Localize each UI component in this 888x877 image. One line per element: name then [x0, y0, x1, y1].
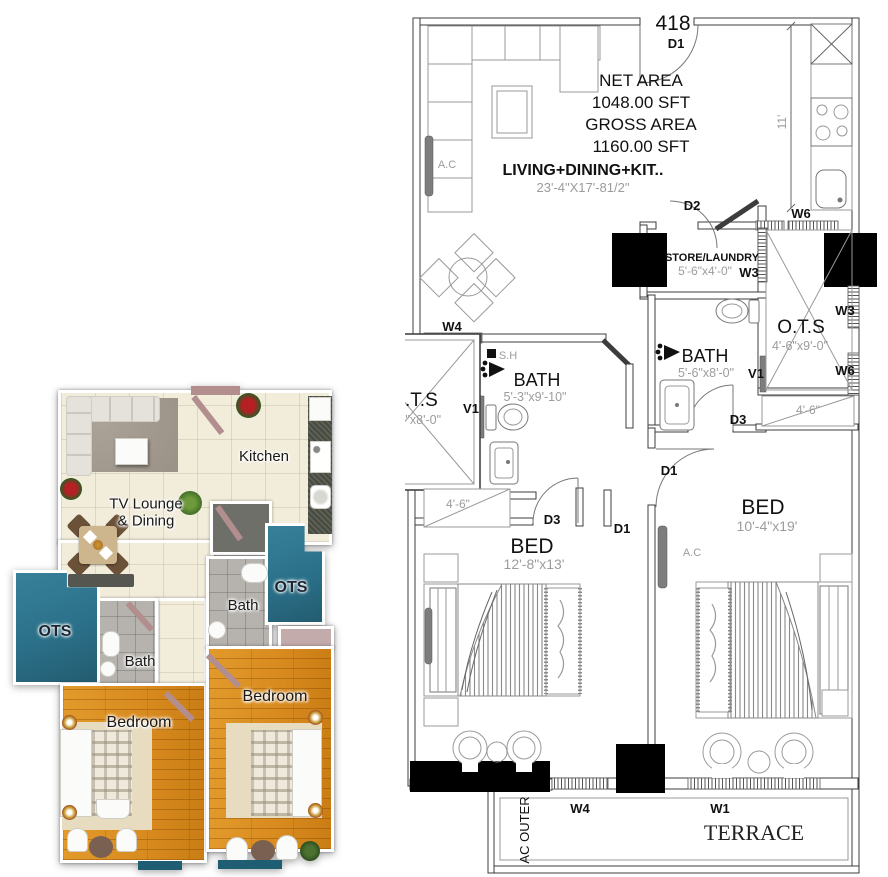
dining-set-icon: [420, 234, 515, 322]
lamp-icon: [62, 805, 77, 820]
window-tag: W3: [835, 303, 855, 318]
entry-door-header: [191, 386, 240, 395]
window-tag: W4: [570, 801, 590, 816]
lamp-icon: [308, 803, 323, 818]
bedroom1-label: Bedroom: [107, 714, 172, 732]
window-tag: W4: [442, 319, 462, 334]
shower-tag: S.H: [499, 350, 517, 362]
kitchen-dim: 11': [775, 115, 789, 130]
ots-right-label: O.T.S: [777, 317, 825, 338]
stove-icon: [310, 441, 331, 473]
kitchen-fittings: [787, 22, 852, 212]
lounge-label-line1: TV Lounge: [109, 497, 182, 514]
coffee-table-icon: [115, 438, 148, 465]
door-tag: D1: [614, 521, 631, 536]
sink-icon: [100, 661, 116, 677]
bath-right-label: BATH: [682, 346, 729, 366]
window-w4-icon: [552, 778, 608, 789]
unit-number: 418: [655, 12, 690, 35]
ots-right-label: OTS: [275, 579, 308, 597]
net-area-label: NET AREA: [599, 71, 683, 90]
toilet-icon: [241, 563, 268, 583]
living-room-dims: 23'-4"X17'-81/2": [537, 180, 630, 195]
bed1-headboard: [60, 729, 92, 817]
ac-tag: A.C: [683, 547, 701, 559]
window-sill: [218, 860, 282, 869]
store-label: STORE/LAUNDRY: [665, 252, 760, 264]
fridge-icon: [309, 397, 331, 421]
cad-floor-plan: 418 D1 NET AREA 1048.00 SFT GROSS AREA 1…: [405, 0, 888, 877]
kitchen-sink-icon: [816, 170, 846, 208]
shower-icon: [664, 345, 680, 360]
lounge-label: TV Lounge & Dining: [109, 497, 182, 530]
terrace-label: TERRACE: [704, 820, 804, 845]
toilet-icon: [716, 299, 759, 323]
chair-icon: [703, 733, 741, 778]
ac-outer-label: AC OUTER: [517, 796, 532, 863]
toilet-icon: [102, 631, 120, 657]
window-sill: [138, 861, 182, 870]
ots-center-dims: 7'-2"x8'-0": [405, 413, 441, 427]
door-tag: D3: [544, 512, 561, 527]
kitchen-sink-icon: [310, 485, 331, 509]
chair-icon: [276, 835, 298, 860]
bedroom2-label: Bedroom: [243, 688, 308, 706]
chair-icon: [226, 837, 248, 862]
lounge-label-line2: & Dining: [109, 513, 182, 530]
ots-center-label: O.T.S: [405, 390, 438, 411]
lamp-icon: [308, 710, 323, 725]
sofa-chaise-icon: [560, 26, 598, 92]
chair-icon: [775, 733, 813, 778]
bed-right-dims: 10'-4"x19': [737, 518, 798, 534]
flower-icon: [60, 478, 82, 500]
floor-plan-sheet: Kitchen TV Lounge & Dining Bath Bath OTS…: [0, 0, 888, 877]
ots-left-label: OTS: [39, 623, 72, 641]
sink-icon: [208, 621, 226, 639]
bed-left-dims: 12'-8"x13': [504, 556, 565, 572]
ottoman-icon: [89, 836, 113, 858]
vent-tag: V1: [748, 366, 764, 381]
door-tag: D3: [730, 412, 747, 427]
door-d3-icon: [688, 385, 733, 430]
bath-right-label: Bath: [228, 598, 259, 615]
ac-unit-icon: [425, 136, 433, 196]
bed1-foot-sheet: [96, 799, 130, 819]
store-dims: 5'-6"x4'-0": [678, 264, 732, 278]
ac-unit-icon: [658, 526, 667, 588]
shower-head-box-icon: [487, 349, 496, 358]
net-area-value: 1048.00 SFT: [592, 93, 690, 112]
bath-center-label: BATH: [514, 370, 561, 390]
bed2-blanket: [251, 730, 292, 816]
door-tag: D1: [661, 463, 678, 478]
color-floor-plan: Kitchen TV Lounge & Dining Bath Bath OTS…: [12, 385, 335, 877]
flower-icon: [236, 393, 261, 418]
chair-icon: [67, 828, 88, 852]
ac-tag: A.C: [438, 159, 456, 171]
window-tag: W6: [791, 206, 811, 221]
corner-stand-icon: [822, 690, 848, 716]
shower-icon: [489, 362, 505, 377]
door-tag: D2: [684, 198, 701, 213]
tv-console-icon: [68, 574, 134, 587]
stove-icon: [811, 98, 852, 146]
window-tag: W1: [710, 801, 730, 816]
living-room-label: LIVING+DINING+KIT..: [503, 162, 664, 179]
vent-tag: V1: [463, 401, 479, 416]
bath-center-dims: 5'-3"x9'-10": [504, 390, 567, 404]
window-w1-icon: [688, 778, 820, 789]
bed-left-label: BED: [510, 535, 553, 558]
plant-icon: [300, 841, 320, 861]
side-table-icon: [748, 751, 770, 773]
kitchen-label: Kitchen: [239, 449, 289, 466]
window-tag: W6: [835, 363, 855, 378]
coffee-table-icon: [492, 86, 532, 138]
door-d1-icon: [656, 449, 714, 507]
window-w6-icon: [788, 221, 838, 230]
ledge-dim: 4'-6": [446, 497, 470, 511]
side-table-icon: [487, 742, 507, 762]
ottoman-icon: [251, 840, 275, 862]
ledge-dim: 4'-6": [796, 403, 820, 417]
gross-area-value: 1160.00 SFT: [592, 137, 689, 156]
bath-right-dims: 5'-6"x8'-0": [678, 366, 734, 380]
chair-icon: [116, 828, 137, 852]
door-tag: D1: [668, 36, 685, 51]
bath-left-label: Bath: [125, 654, 156, 671]
sofa-left-icon: [428, 26, 472, 212]
toilet-icon: [486, 404, 528, 430]
gross-area-label: GROSS AREA: [585, 115, 697, 134]
window-tag: W3: [739, 265, 759, 280]
sofa-left-icon: [66, 396, 92, 476]
bed-left-icon: [424, 554, 580, 726]
bed-right-label: BED: [741, 496, 784, 519]
ots-right-dims: 4'-6"x9'-0": [772, 339, 828, 353]
lamp-icon: [62, 715, 77, 730]
